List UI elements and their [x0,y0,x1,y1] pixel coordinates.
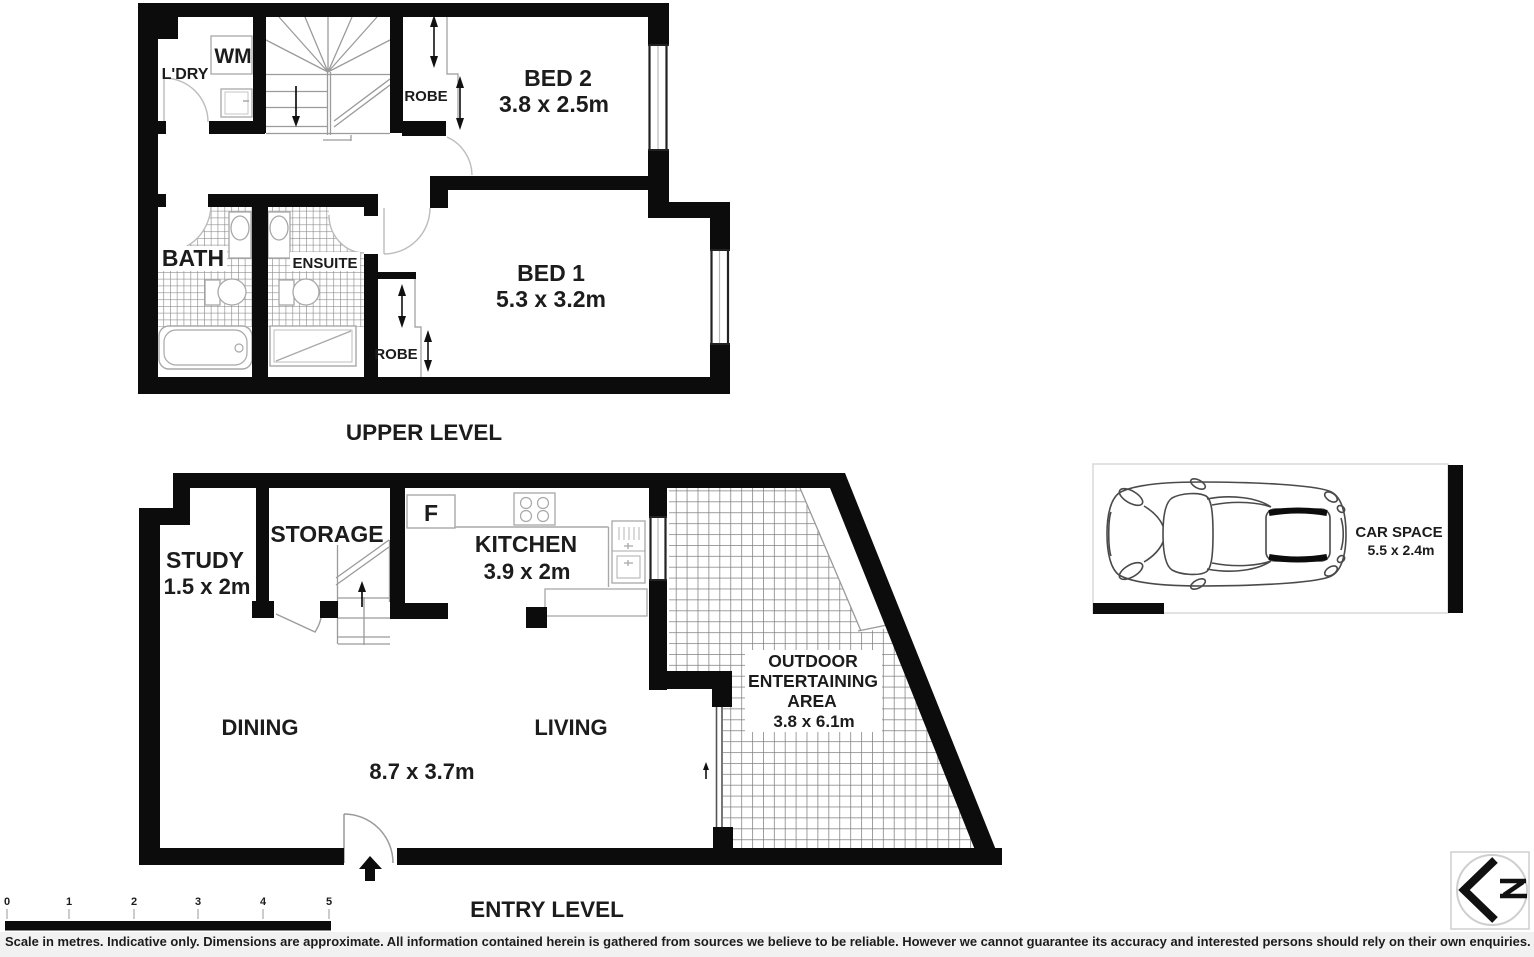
svg-text:3.8 x 6.1m: 3.8 x 6.1m [773,712,854,731]
svg-text:ENTRY LEVEL: ENTRY LEVEL [470,897,624,922]
svg-text:3.8 x 2.5m: 3.8 x 2.5m [499,91,609,117]
svg-text:1: 1 [66,896,72,908]
svg-text:STUDY: STUDY [166,547,244,573]
svg-text:3.9 x 2m: 3.9 x 2m [484,559,571,584]
svg-text:1.5 x 2m: 1.5 x 2m [164,574,251,599]
svg-text:WM: WM [214,45,251,68]
svg-text:ROBE: ROBE [374,346,417,363]
svg-text:ENTERTAINING: ENTERTAINING [748,671,878,691]
svg-text:AREA: AREA [787,691,837,711]
svg-text:4: 4 [260,896,267,908]
svg-text:3: 3 [195,896,201,908]
svg-text:ENSUITE: ENSUITE [292,255,357,272]
svg-text:L'DRY: L'DRY [162,66,209,83]
svg-text:5.3 x 3.2m: 5.3 x 3.2m [496,286,606,312]
svg-text:Scale in metres. Indicative on: Scale in metres. Indicative only. Dimens… [5,934,1531,949]
svg-text:F: F [424,500,438,526]
svg-text:BED 2: BED 2 [524,65,592,91]
svg-text:DINING: DINING [222,715,299,740]
svg-text:LIVING: LIVING [534,715,607,740]
svg-text:ROBE: ROBE [404,88,447,105]
svg-text:2: 2 [131,896,137,908]
svg-text:UPPER LEVEL: UPPER LEVEL [346,420,503,445]
svg-text:CAR SPACE: CAR SPACE [1355,524,1442,541]
svg-text:KITCHEN: KITCHEN [475,531,577,557]
svg-text:5: 5 [326,896,332,908]
svg-text:0: 0 [4,896,10,908]
svg-text:5.5 x 2.4m: 5.5 x 2.4m [1368,542,1435,558]
svg-text:8.7 x 3.7m: 8.7 x 3.7m [369,759,474,784]
svg-text:STORAGE: STORAGE [270,521,383,547]
svg-text:OUTDOOR: OUTDOOR [768,651,858,671]
svg-text:BED 1: BED 1 [517,260,585,286]
svg-text:BATH: BATH [162,245,224,271]
